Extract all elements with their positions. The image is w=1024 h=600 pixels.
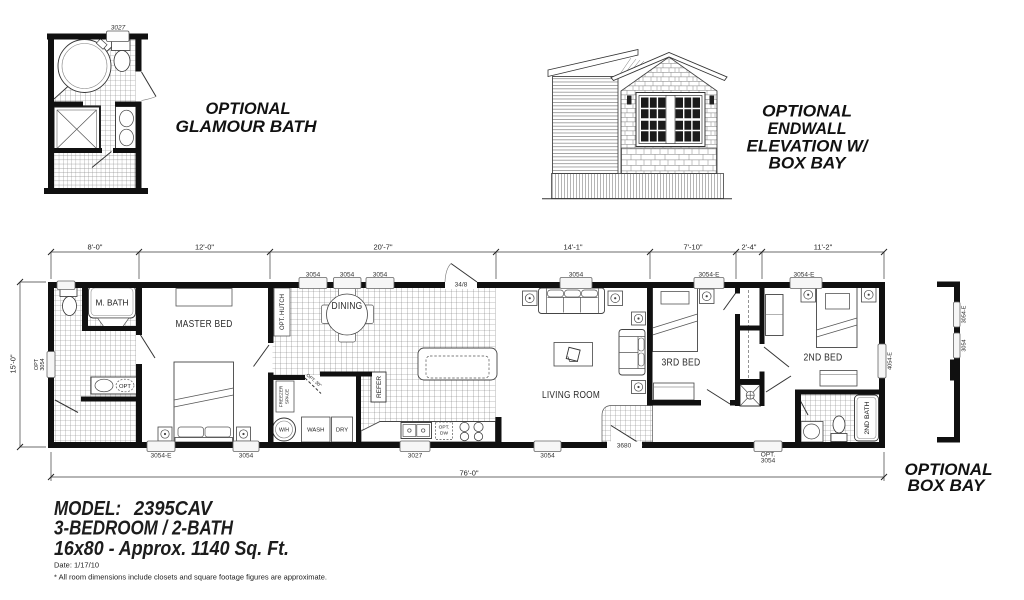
svg-text:15'-0": 15'-0" xyxy=(9,354,18,373)
svg-text:3027: 3027 xyxy=(408,453,423,460)
svg-text:2ND BATH: 2ND BATH xyxy=(864,401,871,434)
svg-text:OPT: OPT xyxy=(119,384,131,390)
svg-text:76'-0": 76'-0" xyxy=(459,469,478,478)
svg-text:3054: 3054 xyxy=(40,358,46,370)
svg-text:14'-1": 14'-1" xyxy=(563,243,582,252)
svg-text:3RD BED: 3RD BED xyxy=(662,357,701,369)
svg-text:* All room dimensions include: * All room dimensions include closets an… xyxy=(54,573,327,582)
svg-text:WASH: WASH xyxy=(307,428,324,434)
svg-text:DW: DW xyxy=(440,431,448,437)
svg-text:LIVING ROOM: LIVING ROOM xyxy=(542,389,600,401)
svg-text:3054: 3054 xyxy=(962,339,968,351)
svg-text:3054-E: 3054-E xyxy=(794,272,816,279)
svg-text:16x80 - Approx. 1140 Sq. Ft.: 16x80 - Approx. 1140 Sq. Ft. xyxy=(54,538,289,560)
svg-text:Date: 1/17/10: Date: 1/17/10 xyxy=(54,561,99,570)
svg-text:11'-2": 11'-2" xyxy=(814,243,833,252)
svg-text:3027: 3027 xyxy=(111,25,126,32)
svg-text:3054-E: 3054-E xyxy=(699,272,721,279)
svg-text:4054-E: 4054-E xyxy=(888,352,894,370)
svg-text:34/8: 34/8 xyxy=(455,282,468,289)
svg-text:ENDWALL: ENDWALL xyxy=(768,119,847,138)
svg-text:SPACE: SPACE xyxy=(285,389,290,404)
svg-text:BOX BAY: BOX BAY xyxy=(908,476,987,495)
svg-text:BOX BAY: BOX BAY xyxy=(769,154,848,173)
svg-text:3054: 3054 xyxy=(569,272,584,279)
svg-text:12'-0": 12'-0" xyxy=(195,243,214,252)
svg-text:3054: 3054 xyxy=(373,272,388,279)
svg-text:FREEZER: FREEZER xyxy=(279,385,284,407)
svg-text:3054: 3054 xyxy=(306,272,321,279)
svg-text:OPT. HUTCH: OPT. HUTCH xyxy=(280,294,286,330)
svg-text:REFER: REFER xyxy=(376,376,383,398)
svg-text:7'-10": 7'-10" xyxy=(683,243,702,252)
svg-text:OPTIONAL: OPTIONAL xyxy=(762,102,852,121)
svg-text:3054: 3054 xyxy=(340,272,355,279)
svg-text:DINING: DINING xyxy=(332,300,363,312)
svg-text:W/H: W/H xyxy=(279,428,289,434)
svg-text:3054: 3054 xyxy=(540,453,555,460)
svg-text:2ND BED: 2ND BED xyxy=(804,352,843,364)
svg-text:20'-7": 20'-7" xyxy=(373,243,392,252)
svg-text:2'-4": 2'-4" xyxy=(742,243,757,252)
svg-text:OPTIONAL: OPTIONAL xyxy=(206,99,291,118)
svg-text:3054-E: 3054-E xyxy=(962,305,968,323)
svg-text:DRY: DRY xyxy=(336,428,348,434)
svg-text:3054: 3054 xyxy=(239,453,254,460)
svg-text:OPT.: OPT. xyxy=(439,425,450,431)
svg-text:3054: 3054 xyxy=(761,458,776,465)
svg-text:3054-E: 3054-E xyxy=(151,453,173,460)
svg-text:8'-0": 8'-0" xyxy=(88,243,103,252)
svg-text:3680: 3680 xyxy=(617,443,632,450)
svg-text:3-BEDROOM / 2-BATH: 3-BEDROOM / 2-BATH xyxy=(54,518,233,540)
svg-text:MASTER BED: MASTER BED xyxy=(176,318,233,330)
svg-text:GLAMOUR BATH: GLAMOUR BATH xyxy=(176,117,318,136)
svg-text:M. BATH: M. BATH xyxy=(96,299,129,308)
